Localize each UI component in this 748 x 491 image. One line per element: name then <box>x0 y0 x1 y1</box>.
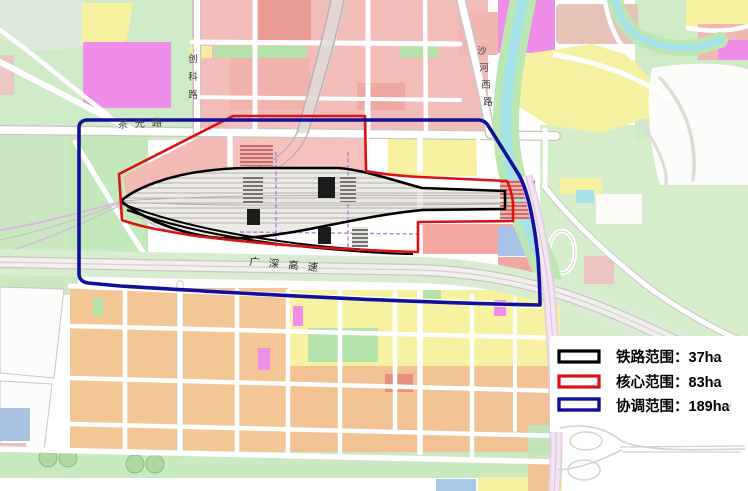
legend-swatch-core <box>559 376 599 387</box>
planning-map-svg: 创 科 路 沙 河 西 路 茶光路 广深高速 铁路范围：37ha ↵ 核心范围：… <box>0 0 748 491</box>
building-hatched <box>352 227 368 247</box>
legend-label-coordination: 协调范围：189ha <box>616 397 731 415</box>
label-chuangke-2: 科 <box>188 71 198 83</box>
station-building <box>318 227 331 244</box>
legend-label-core: 核心范围：83ha <box>616 373 722 391</box>
legend-return-mark: ↵ <box>712 378 720 389</box>
legend-swatch-railway <box>559 351 599 362</box>
legend-label-railway: 铁路范围：37ha <box>616 348 722 366</box>
zone-white-block <box>0 287 64 378</box>
label-shahexi-1: 沙 <box>477 46 487 57</box>
legend-return-mark: ↵ <box>712 353 720 364</box>
planning-map: 创 科 路 沙 河 西 路 茶光路 广深高速 铁路范围：37ha ↵ 核心范围：… <box>0 0 748 491</box>
label-chuangke-1: 创 <box>188 53 198 65</box>
building-hatched <box>340 177 356 202</box>
label-chuangke-3: 路 <box>188 89 198 101</box>
legend-swatch-coordination <box>559 399 599 410</box>
label-shahexi-2: 河 <box>479 62 489 74</box>
building-hatched <box>240 145 273 166</box>
legend: 铁路范围：37ha ↵ 核心范围：83ha ↵ 协调范围：189ha ↵ <box>559 348 732 415</box>
station-building <box>318 177 335 198</box>
label-shahexi-4: 路 <box>483 96 493 108</box>
legend-row-core: 核心范围：83ha ↵ <box>559 373 722 391</box>
building-hatched <box>243 177 263 204</box>
station-building <box>247 209 260 225</box>
legend-row-railway: 铁路范围：37ha ↵ <box>559 348 722 366</box>
label-shahexi-3: 西 <box>481 80 491 91</box>
zone-magenta-nw <box>83 42 171 108</box>
legend-return-mark: ↵ <box>724 402 732 413</box>
